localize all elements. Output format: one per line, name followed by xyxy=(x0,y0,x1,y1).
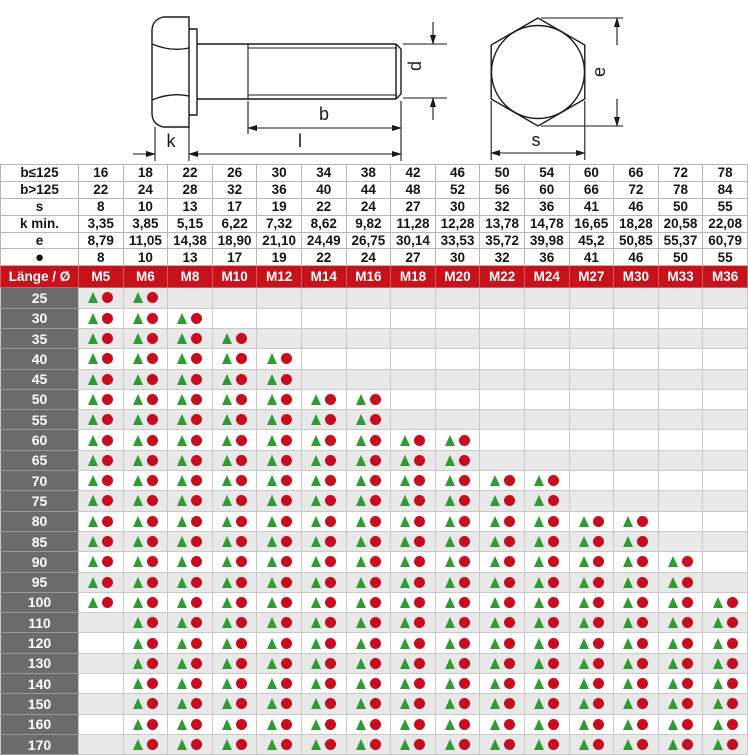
dot-marker-icon xyxy=(236,658,247,669)
dimension-value: 32 xyxy=(480,249,525,266)
availability-cell xyxy=(391,572,436,592)
length-cell: 85 xyxy=(1,531,79,551)
triangle-marker-icon xyxy=(356,394,366,405)
availability-markers xyxy=(347,633,391,652)
length-cell: 50 xyxy=(1,389,79,409)
availability-markers xyxy=(124,329,168,348)
dot-marker-icon xyxy=(459,597,470,608)
availability-cell xyxy=(569,592,614,612)
dot-marker-icon xyxy=(191,374,202,385)
triangle-marker-icon xyxy=(400,577,410,588)
availability-markers xyxy=(525,471,569,490)
dot-marker-icon xyxy=(504,739,515,750)
dot-marker-icon xyxy=(504,638,515,649)
length-cell: 60 xyxy=(1,430,79,450)
dot-marker-icon xyxy=(459,658,470,669)
dot-marker-icon xyxy=(281,556,292,567)
dot-marker-icon xyxy=(325,516,336,527)
availability-markers xyxy=(659,674,703,693)
availability-markers xyxy=(614,532,658,551)
dot-marker-icon xyxy=(325,658,336,669)
dot-marker-icon xyxy=(147,394,158,405)
availability-markers xyxy=(302,633,346,652)
dot-marker-icon xyxy=(325,414,336,425)
availability-markers xyxy=(257,674,301,693)
availability-cell xyxy=(346,511,391,531)
triangle-marker-icon xyxy=(133,536,143,547)
dot-marker-icon xyxy=(236,638,247,649)
availability-cell xyxy=(168,531,213,551)
dimension-value: 22 xyxy=(79,181,124,198)
triangle-marker-icon xyxy=(623,597,633,608)
triangle-marker-icon xyxy=(88,597,98,608)
availability-markers xyxy=(480,694,524,713)
dot-marker-icon xyxy=(459,617,470,628)
triangle-marker-icon xyxy=(356,435,366,446)
availability-cell xyxy=(123,308,168,328)
dimension-value: 46 xyxy=(614,198,659,215)
dimension-value: 24 xyxy=(346,198,391,215)
dot-marker-icon xyxy=(325,597,336,608)
availability-cell xyxy=(658,349,703,369)
size-column-header: M24 xyxy=(524,266,569,288)
availability-cell xyxy=(435,592,480,612)
availability-cell xyxy=(168,673,213,693)
availability-cell xyxy=(79,673,124,693)
length-cell: 90 xyxy=(1,552,79,572)
availability-cell xyxy=(391,511,436,531)
availability-cell xyxy=(301,653,346,673)
triangle-marker-icon xyxy=(579,739,589,750)
dimension-value: 30 xyxy=(257,165,302,182)
availability-markers xyxy=(659,552,703,571)
availability-cell xyxy=(257,653,302,673)
availability-markers xyxy=(391,694,435,713)
triangle-marker-icon xyxy=(267,698,277,709)
availability-cell xyxy=(212,511,257,531)
triangle-marker-icon xyxy=(579,719,589,730)
dot-marker-icon xyxy=(459,475,470,486)
catalog-page: k l b d e s b≤12516182226303438424650546… xyxy=(0,0,748,756)
availability-cell xyxy=(212,349,257,369)
dot-marker-icon xyxy=(504,698,515,709)
availability-cell xyxy=(391,308,436,328)
dot-marker-icon xyxy=(236,556,247,567)
dot-marker-icon xyxy=(637,617,648,628)
dot-marker-icon xyxy=(236,739,247,750)
dot-marker-icon xyxy=(548,475,559,486)
availability-cell xyxy=(614,714,659,734)
triangle-marker-icon xyxy=(267,353,277,364)
availability-cell xyxy=(703,308,748,328)
availability-markers xyxy=(257,654,301,673)
triangle-marker-icon xyxy=(668,597,678,608)
availability-markers xyxy=(213,349,257,368)
size-column-header: M5 xyxy=(79,266,124,288)
triangle-marker-icon xyxy=(267,719,277,730)
triangle-marker-icon xyxy=(356,739,366,750)
availability-markers xyxy=(347,410,391,429)
availability-cell xyxy=(569,531,614,551)
availability-markers xyxy=(213,654,257,673)
availability-cell xyxy=(346,592,391,612)
triangle-marker-icon xyxy=(445,638,455,649)
triangle-marker-icon xyxy=(222,353,232,364)
triangle-marker-icon xyxy=(490,678,500,689)
availability-markers xyxy=(570,552,614,571)
availability-cell xyxy=(614,491,659,511)
length-cell: 55 xyxy=(1,410,79,430)
dimension-row-label: k min. xyxy=(1,215,79,232)
length-cell: 30 xyxy=(1,308,79,328)
availability-cell xyxy=(703,552,748,572)
availability-markers xyxy=(168,451,212,470)
dim-label-s: s xyxy=(532,130,541,150)
availability-cell xyxy=(480,430,525,450)
dot-marker-icon xyxy=(593,739,604,750)
length-row: 160 xyxy=(1,714,748,734)
availability-markers xyxy=(168,410,212,429)
dimension-value: 50,85 xyxy=(614,232,659,249)
dot-marker-icon xyxy=(370,394,381,405)
dot-marker-icon xyxy=(236,435,247,446)
availability-markers xyxy=(168,715,212,734)
dot-marker-icon xyxy=(102,556,113,567)
dot-marker-icon xyxy=(281,475,292,486)
availability-markers xyxy=(213,613,257,632)
availability-markers xyxy=(525,735,569,754)
availability-markers xyxy=(257,593,301,612)
availability-cell xyxy=(123,450,168,470)
triangle-marker-icon xyxy=(534,536,544,547)
dot-marker-icon xyxy=(593,556,604,567)
length-row: 110 xyxy=(1,613,748,633)
triangle-marker-icon xyxy=(668,739,678,750)
triangle-marker-icon xyxy=(623,739,633,750)
triangle-marker-icon xyxy=(222,698,232,709)
availability-cell xyxy=(79,572,124,592)
triangle-marker-icon xyxy=(267,597,277,608)
availability-cell xyxy=(301,450,346,470)
dot-marker-icon xyxy=(370,678,381,689)
availability-markers xyxy=(347,573,391,592)
availability-cell xyxy=(301,511,346,531)
dot-marker-icon xyxy=(102,292,113,303)
triangle-marker-icon xyxy=(356,617,366,628)
triangle-marker-icon xyxy=(579,638,589,649)
availability-cell xyxy=(168,288,213,308)
dot-marker-icon xyxy=(325,698,336,709)
dimension-value: 32 xyxy=(480,198,525,215)
availability-cell xyxy=(614,734,659,754)
availability-cell xyxy=(79,531,124,551)
size-column-header: M27 xyxy=(569,266,614,288)
availability-markers xyxy=(703,735,747,754)
availability-markers xyxy=(480,471,524,490)
availability-cell xyxy=(703,734,748,754)
dimension-value: 52 xyxy=(435,181,480,198)
availability-markers xyxy=(391,573,435,592)
availability-markers xyxy=(480,573,524,592)
dimension-value: 24 xyxy=(123,181,168,198)
triangle-marker-icon xyxy=(133,719,143,730)
triangle-marker-icon xyxy=(490,739,500,750)
availability-cell xyxy=(658,572,703,592)
triangle-marker-icon xyxy=(668,698,678,709)
availability-markers xyxy=(168,491,212,510)
dot-marker-icon xyxy=(637,698,648,709)
availability-markers xyxy=(480,715,524,734)
availability-markers xyxy=(703,593,747,612)
availability-markers xyxy=(480,593,524,612)
triangle-marker-icon xyxy=(222,333,232,344)
availability-cell xyxy=(614,328,659,348)
dot-marker-icon xyxy=(236,353,247,364)
triangle-marker-icon xyxy=(267,455,277,466)
availability-cell xyxy=(569,430,614,450)
triangle-marker-icon xyxy=(267,556,277,567)
availability-markers xyxy=(703,613,747,632)
availability-cell xyxy=(614,673,659,693)
triangle-marker-icon xyxy=(177,374,187,385)
dot-marker-icon xyxy=(593,698,604,709)
availability-cell xyxy=(168,613,213,633)
dimension-value: 34 xyxy=(301,165,346,182)
availability-cell xyxy=(703,491,748,511)
availability-cell xyxy=(79,328,124,348)
dimension-value: 12,28 xyxy=(435,215,480,232)
availability-cell xyxy=(658,552,703,572)
dimension-value: 3,85 xyxy=(123,215,168,232)
availability-cell xyxy=(569,471,614,491)
dot-marker-icon xyxy=(459,577,470,588)
availability-markers xyxy=(391,613,435,632)
availability-markers xyxy=(124,491,168,510)
availability-cell xyxy=(301,531,346,551)
triangle-marker-icon xyxy=(356,556,366,567)
dot-marker-icon xyxy=(593,658,604,669)
availability-markers xyxy=(302,390,346,409)
availability-cell xyxy=(79,308,124,328)
dot-marker-icon xyxy=(281,536,292,547)
availability-markers xyxy=(347,491,391,510)
triangle-marker-icon xyxy=(356,536,366,547)
triangle-marker-icon xyxy=(311,536,321,547)
triangle-marker-icon xyxy=(490,597,500,608)
dot-marker-icon xyxy=(147,414,158,425)
availability-markers xyxy=(213,471,257,490)
dot-marker-icon xyxy=(102,435,113,446)
dot-marker-icon xyxy=(281,597,292,608)
triangle-marker-icon xyxy=(400,495,410,506)
dot-marker-icon xyxy=(414,597,425,608)
dot-marker-icon xyxy=(147,313,158,324)
availability-cell xyxy=(257,389,302,409)
triangle-marker-icon xyxy=(222,678,232,689)
dot-marker-icon xyxy=(459,739,470,750)
availability-cell xyxy=(212,328,257,348)
availability-cell xyxy=(391,389,436,409)
availability-cell xyxy=(480,552,525,572)
dot-marker-icon xyxy=(682,678,693,689)
triangle-marker-icon xyxy=(356,597,366,608)
triangle-marker-icon xyxy=(177,719,187,730)
triangle-marker-icon xyxy=(400,597,410,608)
dot-marker-icon xyxy=(236,698,247,709)
dot-marker-icon xyxy=(191,414,202,425)
availability-cell xyxy=(391,613,436,633)
dot-marker-icon xyxy=(548,597,559,608)
availability-cell xyxy=(524,389,569,409)
availability-cell xyxy=(79,653,124,673)
availability-cell xyxy=(524,613,569,633)
availability-cell xyxy=(301,491,346,511)
availability-cell xyxy=(391,349,436,369)
availability-markers xyxy=(302,715,346,734)
dot-marker-icon xyxy=(325,435,336,446)
availability-cell xyxy=(435,734,480,754)
availability-markers xyxy=(302,512,346,531)
availability-cell xyxy=(569,328,614,348)
triangle-marker-icon xyxy=(445,719,455,730)
availability-markers xyxy=(480,532,524,551)
bolt-side-view xyxy=(152,17,401,127)
availability-cell xyxy=(346,389,391,409)
availability-cell xyxy=(212,450,257,470)
size-column-header: M36 xyxy=(703,266,748,288)
size-column-header: M12 xyxy=(257,266,302,288)
availability-markers xyxy=(302,491,346,510)
availability-cell xyxy=(168,450,213,470)
length-cell: 75 xyxy=(1,491,79,511)
availability-cell xyxy=(346,694,391,714)
dot-marker-icon xyxy=(236,597,247,608)
availability-markers xyxy=(124,309,168,328)
availability-cell xyxy=(569,288,614,308)
triangle-marker-icon xyxy=(133,617,143,628)
availability-cell xyxy=(123,633,168,653)
availability-markers xyxy=(525,715,569,734)
dimension-value: 3,35 xyxy=(79,215,124,232)
availability-cell xyxy=(524,673,569,693)
availability-markers xyxy=(79,309,123,328)
availability-markers xyxy=(614,573,658,592)
availability-markers xyxy=(168,593,212,612)
availability-markers xyxy=(570,694,614,713)
dot-marker-icon xyxy=(459,556,470,567)
availability-markers xyxy=(659,735,703,754)
dot-marker-icon xyxy=(236,516,247,527)
availability-cell xyxy=(301,369,346,389)
triangle-marker-icon xyxy=(177,414,187,425)
availability-cell xyxy=(212,572,257,592)
availability-cell xyxy=(391,714,436,734)
availability-markers xyxy=(480,613,524,632)
availability-cell xyxy=(658,653,703,673)
availability-cell xyxy=(123,369,168,389)
availability-markers xyxy=(391,674,435,693)
availability-markers xyxy=(302,654,346,673)
availability-markers xyxy=(302,613,346,632)
availability-markers xyxy=(525,532,569,551)
availability-cell xyxy=(391,734,436,754)
triangle-marker-icon xyxy=(534,658,544,669)
dot-marker-icon xyxy=(727,658,738,669)
availability-markers xyxy=(302,573,346,592)
triangle-marker-icon xyxy=(222,455,232,466)
dimension-value: 22 xyxy=(168,165,213,182)
availability-cell xyxy=(658,613,703,633)
dot-marker-icon xyxy=(147,638,158,649)
dot-marker-icon xyxy=(682,556,693,567)
triangle-marker-icon xyxy=(177,739,187,750)
availability-markers xyxy=(124,410,168,429)
availability-cell xyxy=(614,471,659,491)
dot-marker-icon xyxy=(147,617,158,628)
dot-marker-icon xyxy=(682,638,693,649)
dot-marker-icon xyxy=(325,495,336,506)
availability-cell xyxy=(346,410,391,430)
triangle-marker-icon xyxy=(490,536,500,547)
availability-markers xyxy=(525,573,569,592)
dot-marker-icon xyxy=(370,536,381,547)
availability-cell xyxy=(658,491,703,511)
availability-cell xyxy=(524,369,569,389)
availability-cell xyxy=(391,288,436,308)
availability-cell xyxy=(435,694,480,714)
availability-cell xyxy=(257,430,302,450)
availability-markers xyxy=(257,715,301,734)
dimension-value: 41 xyxy=(569,249,614,266)
availability-cell xyxy=(301,633,346,653)
availability-cell xyxy=(212,288,257,308)
triangle-marker-icon xyxy=(534,638,544,649)
dimension-value: 18 xyxy=(123,165,168,182)
availability-markers xyxy=(525,633,569,652)
availability-markers xyxy=(480,735,524,754)
availability-markers xyxy=(168,633,212,652)
triangle-marker-icon xyxy=(713,678,723,689)
triangle-marker-icon xyxy=(88,577,98,588)
dot-marker-icon xyxy=(548,678,559,689)
availability-markers xyxy=(570,633,614,652)
availability-markers xyxy=(213,694,257,713)
availability-markers xyxy=(257,512,301,531)
availability-cell xyxy=(79,410,124,430)
availability-cell xyxy=(569,734,614,754)
size-column-header: M6 xyxy=(123,266,168,288)
availability-markers xyxy=(213,390,257,409)
availability-cell xyxy=(79,552,124,572)
dot-marker-icon xyxy=(281,739,292,750)
availability-markers xyxy=(703,715,747,734)
availability-cell xyxy=(391,450,436,470)
dimension-value: 84 xyxy=(703,181,748,198)
availability-markers xyxy=(570,715,614,734)
availability-cell xyxy=(257,288,302,308)
availability-cell xyxy=(391,552,436,572)
availability-cell xyxy=(703,572,748,592)
availability-markers xyxy=(436,613,480,632)
length-row: 140 xyxy=(1,673,748,693)
triangle-marker-icon xyxy=(356,577,366,588)
availability-markers xyxy=(79,491,123,510)
availability-markers xyxy=(614,715,658,734)
availability-markers xyxy=(391,430,435,449)
dimension-value: 48 xyxy=(391,181,436,198)
triangle-marker-icon xyxy=(579,597,589,608)
availability-cell xyxy=(614,369,659,389)
